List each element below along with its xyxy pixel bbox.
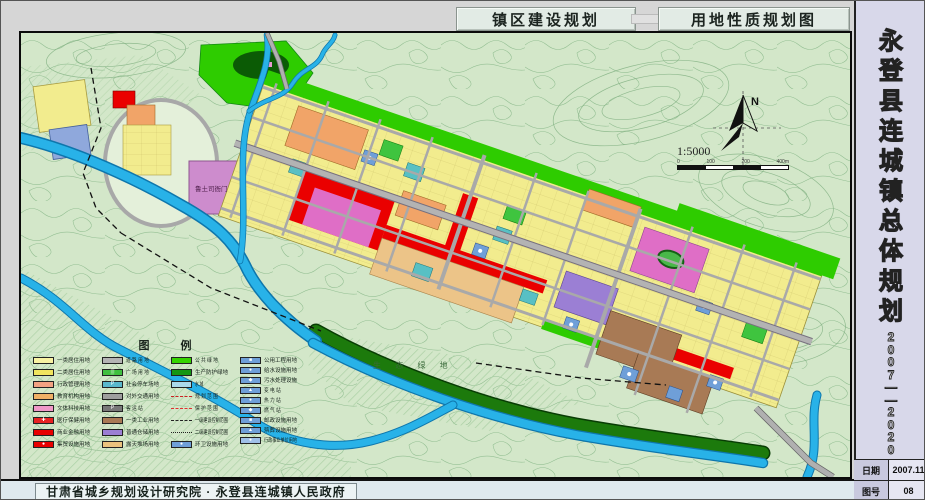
sheet-number-value: 08: [889, 481, 925, 500]
legend-swatch: ■: [240, 417, 261, 424]
legend-item: ■邮政设施用地: [240, 416, 309, 424]
sheet-number-row: 图号 08: [854, 481, 925, 500]
legend-label: 生产防护绿地: [195, 368, 228, 376]
legend-item: 露天堆场用地: [102, 440, 171, 448]
legend-label: 给水设施用地: [264, 366, 297, 374]
scale-tick: 400m: [776, 159, 789, 165]
legend-swatch: [171, 396, 192, 397]
legend-item: 教育机构用地: [33, 392, 102, 400]
legend-swatch: ■: [240, 357, 261, 364]
legend-item: 一类工业用地: [102, 416, 171, 424]
legend-label: 文体科技用地: [57, 404, 90, 412]
scale-bar: 0100200400m: [677, 159, 789, 170]
legend-item: ▒广 场 用 地: [102, 368, 171, 376]
plan-title-char: 划: [879, 297, 903, 327]
legend-label: 医疗保健用地: [57, 416, 90, 424]
legend-label: 一类居住用地: [57, 356, 90, 364]
plan-years-vertical: 2007——2020: [856, 331, 925, 456]
legend-swatch: [102, 417, 123, 424]
legend-item: P客 运 站: [102, 404, 171, 412]
legend-swatch: ◆: [240, 407, 261, 414]
plan-title-char: 连: [879, 117, 903, 147]
legend-item: 一类居住用地: [33, 356, 102, 364]
map-frame: N 1:5000 生 态 绿 地 鲁土司衙门 0100200400m 图 例 一…: [19, 31, 852, 479]
legend-label: 行政事业单位用地: [264, 436, 297, 444]
legend-label: 殡葬设施用地: [264, 426, 297, 434]
sheet-meta: 日期 2007.11 图号 08: [854, 459, 925, 500]
planning-sheet: 镇区建设规划 用地性质规划图: [0, 0, 925, 500]
date-row: 日期 2007.11: [854, 460, 925, 481]
legend-item: ■公用工程用地: [240, 356, 309, 364]
legend-label: 广 场 用 地: [126, 368, 149, 376]
eco-green-label: 生 态 绿 地: [373, 360, 454, 370]
plan-year-char: 2: [888, 331, 895, 344]
legend-swatch: [33, 429, 54, 436]
legend-swatch: [33, 393, 54, 400]
legend-item: 道 路 用 地: [102, 356, 171, 364]
scale-tick: 0: [677, 159, 680, 165]
legend-item: 公 共 绿 地: [171, 356, 240, 364]
plan-title-char: 永: [879, 27, 903, 57]
legend-item: ●行政事业单位用地: [240, 436, 309, 444]
legend-label: 环卫设施用地: [195, 440, 228, 448]
legend-label: 公 共 绿 地: [195, 356, 218, 364]
legend-label: 二类居住用地: [57, 368, 90, 376]
legend-item: ●环卫设施用地: [171, 440, 240, 448]
legend-label: 保 护 范 围: [195, 404, 218, 412]
legend-label: 污水处理设施: [264, 376, 297, 384]
legend-swatch: ◆: [240, 377, 261, 384]
legend-item: 二类居住用地: [33, 368, 102, 376]
plan-year-char: 2: [888, 431, 895, 444]
legend-item: ●热 力 站: [240, 396, 309, 404]
legend-label: 二级建设控制范围: [195, 428, 228, 436]
legend-swatch: ▲: [240, 387, 261, 394]
legend-item: 行政管理用地: [33, 380, 102, 388]
legend-column-2: 道 路 用 地▒广 场 用 地P社会停车场地对外交通用地P客 运 站一类工业用地…: [102, 356, 171, 448]
plan-year-char: —: [885, 381, 897, 394]
legend-item: ▲变 电 站: [240, 386, 309, 394]
scale-text: 1:5000: [677, 144, 710, 158]
legend-column-4: ■公用工程用地●给水设施用地◆污水处理设施▲变 电 站●热 力 站◆燃 气 站■…: [240, 356, 309, 448]
date-label: 日期: [854, 460, 889, 480]
plan-title-char: 体: [879, 237, 903, 267]
legend-swatch: [171, 420, 192, 421]
legend-swatch: [171, 432, 192, 433]
legend-label: 一类工业用地: [126, 416, 159, 424]
plan-title-char: 规: [879, 267, 903, 297]
legend-swatch: [33, 357, 54, 364]
legend-swatch: [171, 357, 192, 364]
legend-swatch: ▲: [240, 427, 261, 434]
legend-swatch: [102, 441, 123, 448]
legend: 图 例 一类居住用地二类居住用地行政管理用地教育机构用地文体科技用地✚医疗保健用…: [33, 337, 311, 475]
legend-label: 对外交通用地: [126, 392, 159, 400]
legend-swatch: P: [102, 381, 123, 388]
legend-swatch: ●: [240, 437, 261, 444]
plan-title-char: 总: [879, 207, 903, 237]
legend-swatch: [102, 393, 123, 400]
legend-swatch: [102, 429, 123, 436]
legend-item: 二级建设控制范围: [171, 428, 240, 436]
legend-label: 规 划 范 围: [195, 392, 218, 400]
plan-title-char: 登: [879, 57, 903, 87]
legend-item: 文体科技用地: [33, 404, 102, 412]
plan-title-char: 城: [879, 147, 903, 177]
legend-label: 变 电 站: [264, 386, 281, 394]
plan-year-char: 0: [888, 444, 895, 457]
legend-swatch: ●: [240, 397, 261, 404]
legend-swatch: [171, 369, 192, 376]
legend-item: P社会停车场地: [102, 380, 171, 388]
legend-label: 一级建设控制范围: [195, 416, 228, 424]
legend-label: 燃 气 站: [264, 406, 281, 414]
legend-item: ▲殡葬设施用地: [240, 426, 309, 434]
legend-label: 邮政设施用地: [264, 416, 297, 424]
legend-swatch: ▒: [102, 369, 123, 376]
sheet-title-series: 镇区建设规划: [456, 7, 636, 31]
sheet-title-map: 用地性质规划图: [658, 7, 850, 31]
scale-tick: 200: [741, 159, 749, 165]
legend-item: 生产防护绿地: [171, 368, 240, 376]
legend-item: ✚医疗保健用地: [33, 416, 102, 424]
legend-swatch: P: [102, 405, 123, 412]
legend-item: ●给水设施用地: [240, 366, 309, 374]
legend-item: ◆燃 气 站: [240, 406, 309, 414]
legend-item: 规 划 范 围: [171, 392, 240, 400]
scale-tick: 100: [706, 159, 714, 165]
legend-swatch: [102, 357, 123, 364]
legend-label: 公用工程用地: [264, 356, 297, 364]
legend-swatch: ●: [171, 441, 192, 448]
legend-label: 行政管理用地: [57, 380, 90, 388]
legend-item: 一级建设控制范围: [171, 416, 240, 424]
legend-label: 普通仓储用地: [126, 428, 159, 436]
legend-label: 教育机构用地: [57, 392, 90, 400]
legend-swatch: ✚: [33, 417, 54, 424]
footer-bar: 甘肃省城乡规划设计研究院 · 永登县连城镇人民政府: [1, 479, 854, 500]
legend-label: 商业金融用地: [57, 428, 90, 436]
sheet-number-label: 图号: [854, 481, 889, 500]
legend-column-1: 一类居住用地二类居住用地行政管理用地教育机构用地文体科技用地✚医疗保健用地商业金…: [33, 356, 102, 448]
plan-year-char: 2: [888, 406, 895, 419]
plan-title-char: 县: [879, 87, 903, 117]
legend-swatch: [171, 408, 192, 409]
legend-swatch: ●: [240, 367, 261, 374]
legend-item: 保 护 范 围: [171, 404, 240, 412]
legend-item: 商业金融用地: [33, 428, 102, 436]
credit-box: 甘肃省城乡规划设计研究院 · 永登县连城镇人民政府: [35, 483, 357, 500]
date-value: 2007.11: [889, 460, 925, 480]
plan-title-vertical: 永登县连城镇总体规划: [856, 27, 925, 327]
legend-item: ●集贸设施用地: [33, 440, 102, 448]
legend-label: 集贸设施用地: [57, 440, 90, 448]
legend-label: 热 力 站: [264, 396, 281, 404]
legend-swatch: [171, 381, 192, 388]
legend-label: 水 域: [195, 380, 203, 388]
legend-label: 道 路 用 地: [126, 356, 149, 364]
legend-column-3: 公 共 绿 地生产防护绿地水 域规 划 范 围保 护 范 围一级建设控制范围二级…: [171, 356, 240, 448]
heritage-label: 鲁土司衙门: [195, 184, 228, 193]
legend-title: 图 例: [33, 337, 311, 353]
legend-label: 客 运 站: [126, 404, 143, 412]
legend-swatch: ●: [33, 441, 54, 448]
legend-item: 普通仓储用地: [102, 428, 171, 436]
title-block-sidebar: 永登县连城镇总体规划 2007——2020 日期 2007.11 图号 08: [854, 1, 925, 500]
legend-item: 对外交通用地: [102, 392, 171, 400]
legend-swatch: [33, 405, 54, 412]
north-label: N: [751, 96, 759, 108]
legend-item: 水 域: [171, 380, 240, 388]
legend-swatch: [33, 381, 54, 388]
legend-item: ◆污水处理设施: [240, 376, 309, 384]
legend-label: 露天堆场用地: [126, 440, 159, 448]
legend-swatch: [33, 369, 54, 376]
plan-year-char: 0: [888, 356, 895, 369]
plan-title-char: 镇: [879, 177, 903, 207]
legend-label: 社会停车场地: [126, 380, 159, 388]
